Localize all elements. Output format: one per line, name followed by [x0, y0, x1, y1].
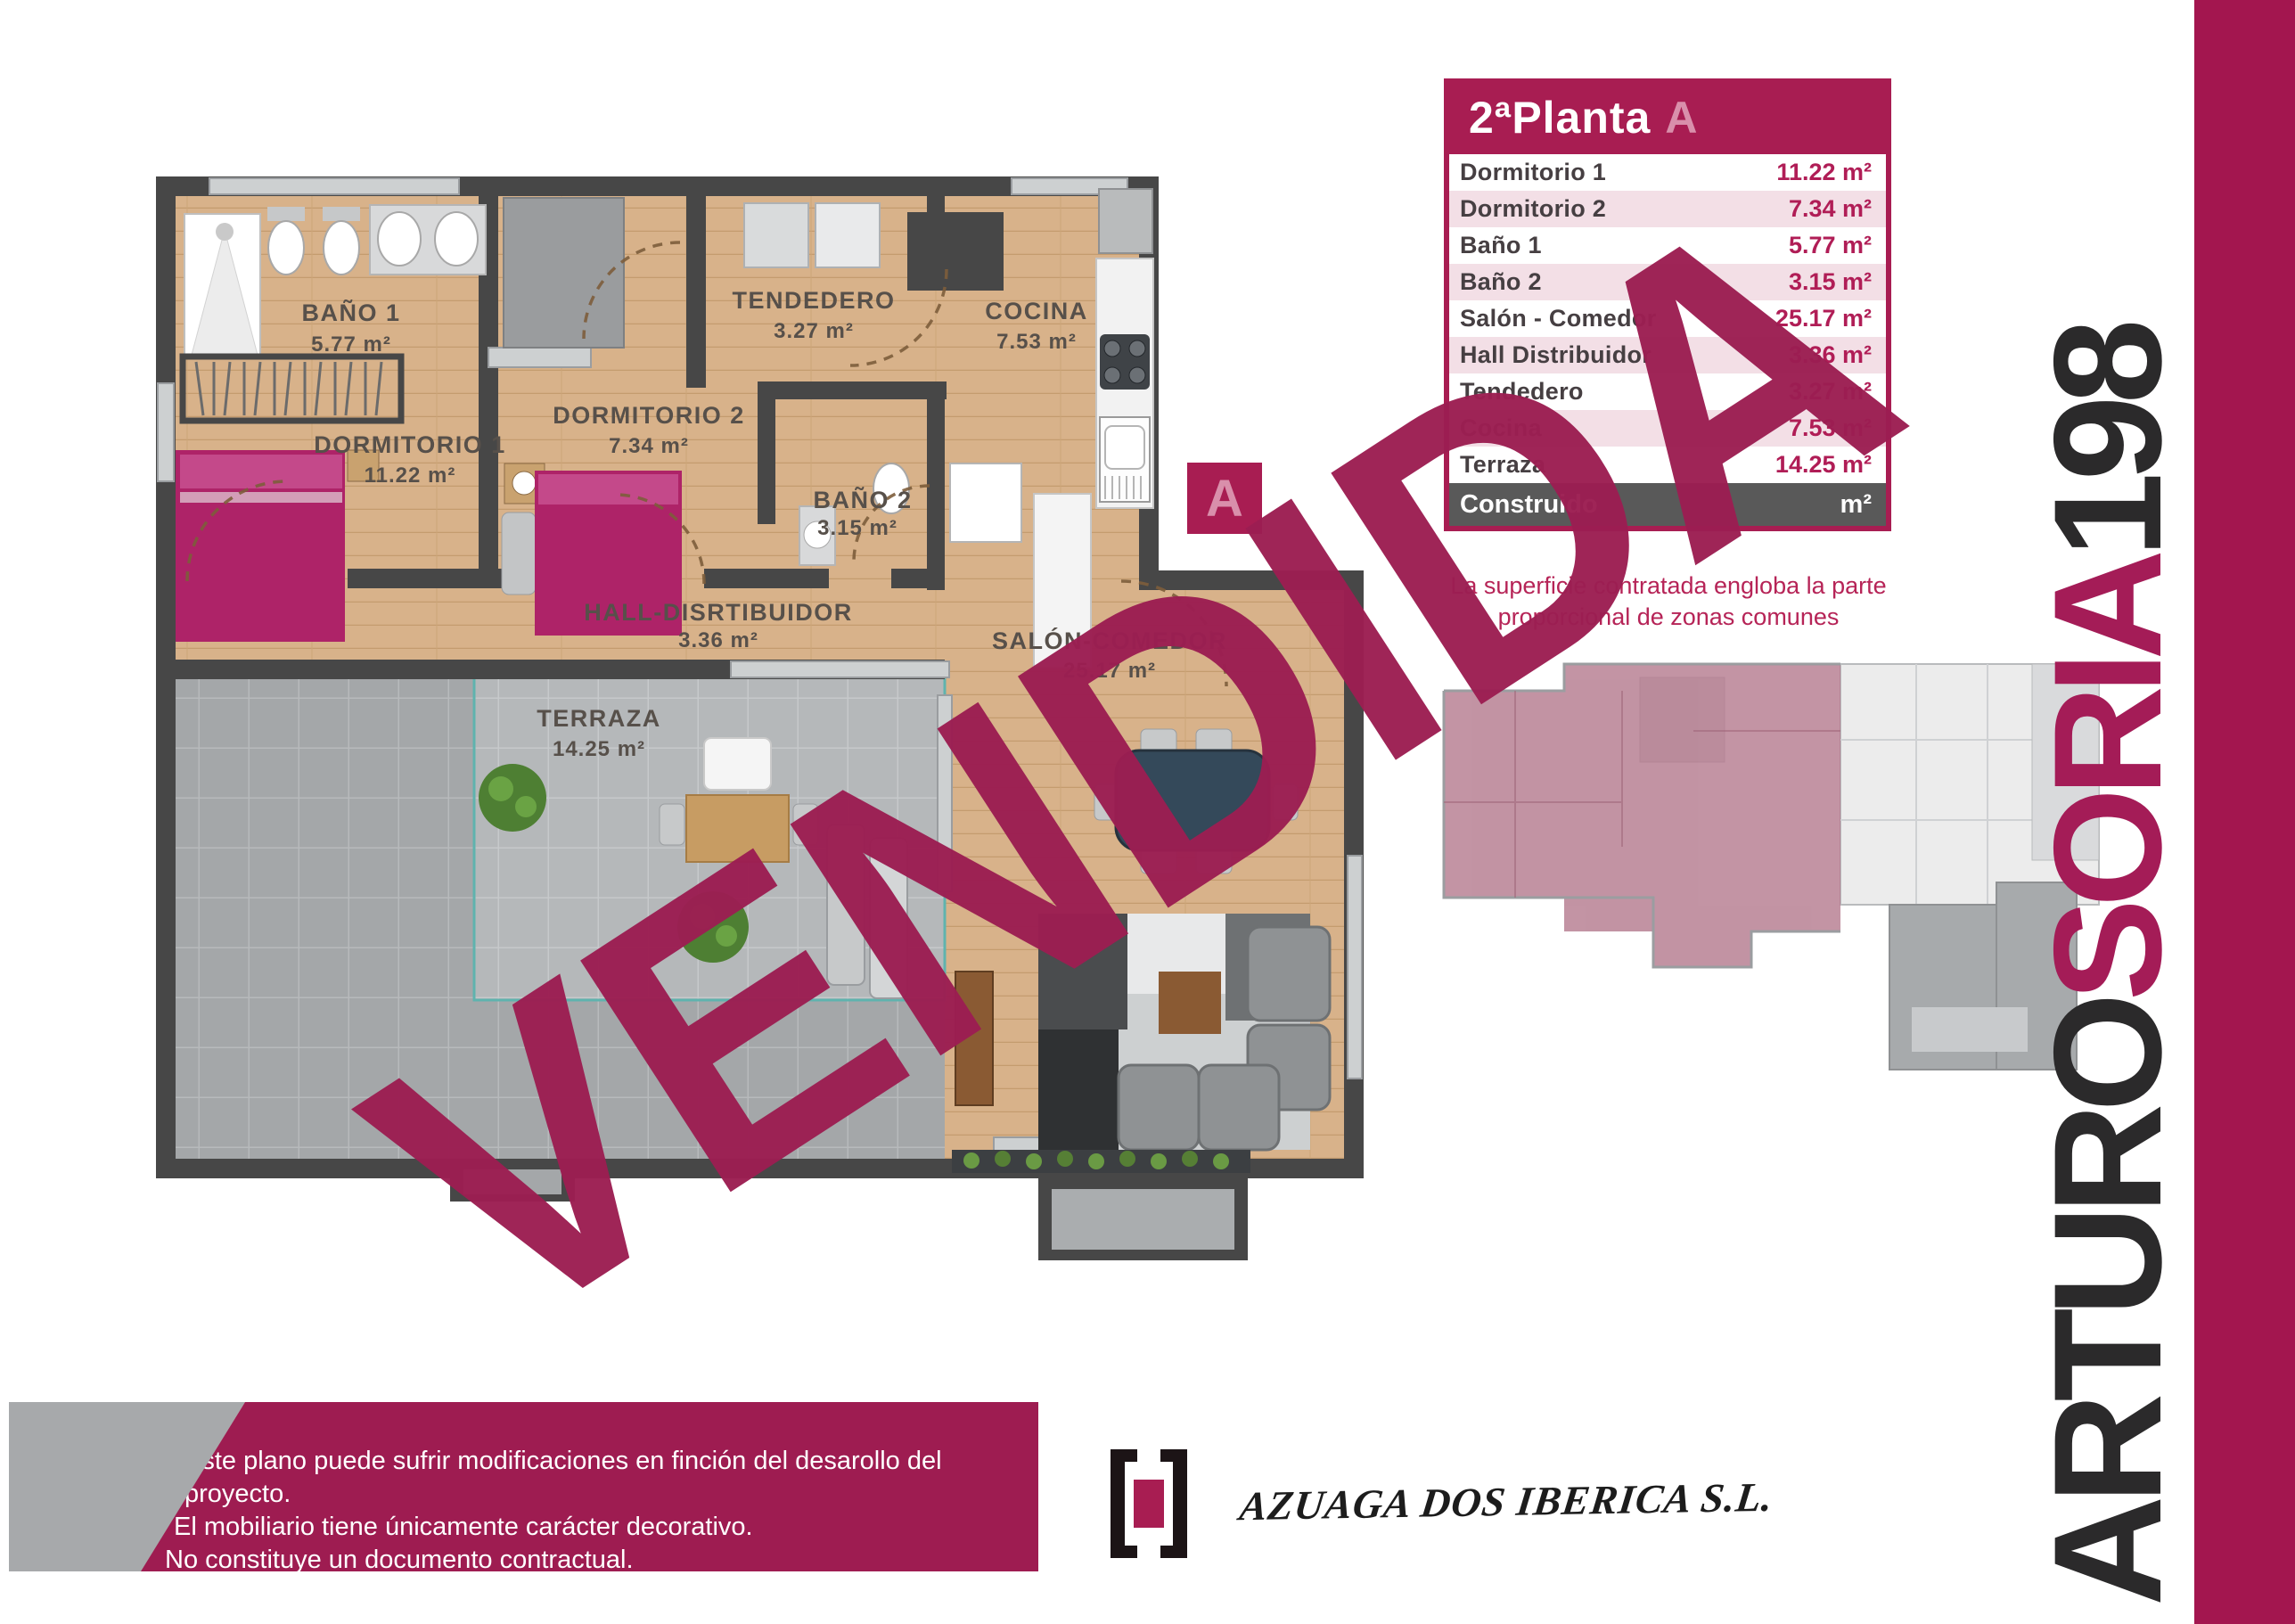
company-logo-icon	[1111, 1449, 1187, 1562]
table-header: 2ªPlantaA	[1449, 84, 1886, 154]
room-label-dormitorio2: DORMITORIO 2	[553, 402, 745, 429]
brochure-page: BAÑO 1 5.77 m² DORMITORIO 1 11.22 m² DOR…	[0, 0, 2295, 1624]
svg-text:3.36 m²: 3.36 m²	[678, 628, 758, 652]
room-label-hall: HALL-DISRTIBUIDOR	[584, 599, 852, 626]
brand-vertical-text: ARTUROSORIA198	[2031, 189, 2184, 1606]
room-label-bano2: BAÑO 2	[813, 486, 912, 513]
room-label-cocina: COCINA	[985, 298, 1088, 324]
room-label-tendedero: TENDEDERO	[732, 287, 895, 314]
brand-side-bar	[2194, 0, 2295, 1624]
svg-text:7.53 m²: 7.53 m²	[996, 330, 1077, 354]
svg-text:3.15 m²: 3.15 m²	[817, 516, 898, 540]
floor-title: 2ªPlanta	[1469, 93, 1651, 143]
svg-text:7.34 m²: 7.34 m²	[609, 434, 689, 458]
room-label-terraza: TERRAZA	[537, 705, 661, 732]
svg-text:11.22 m²: 11.22 m²	[365, 463, 456, 488]
room-label-dormitorio1: DORMITORIO 1	[314, 431, 506, 458]
company-name: AZUAGA DOS IBERICA S.L.	[1237, 1473, 1776, 1530]
lower-annex	[1052, 1189, 1234, 1250]
svg-text:14.25 m²: 14.25 m²	[553, 737, 645, 761]
room-label-bano1: BAÑO 1	[301, 299, 400, 326]
planter	[952, 1150, 1250, 1173]
svg-text:3.27 m²: 3.27 m²	[774, 319, 854, 343]
svg-text:5.77 m²: 5.77 m²	[311, 332, 391, 357]
disclaimer-text: Este plano puede sufrir modificaciones e…	[165, 1445, 1038, 1577]
